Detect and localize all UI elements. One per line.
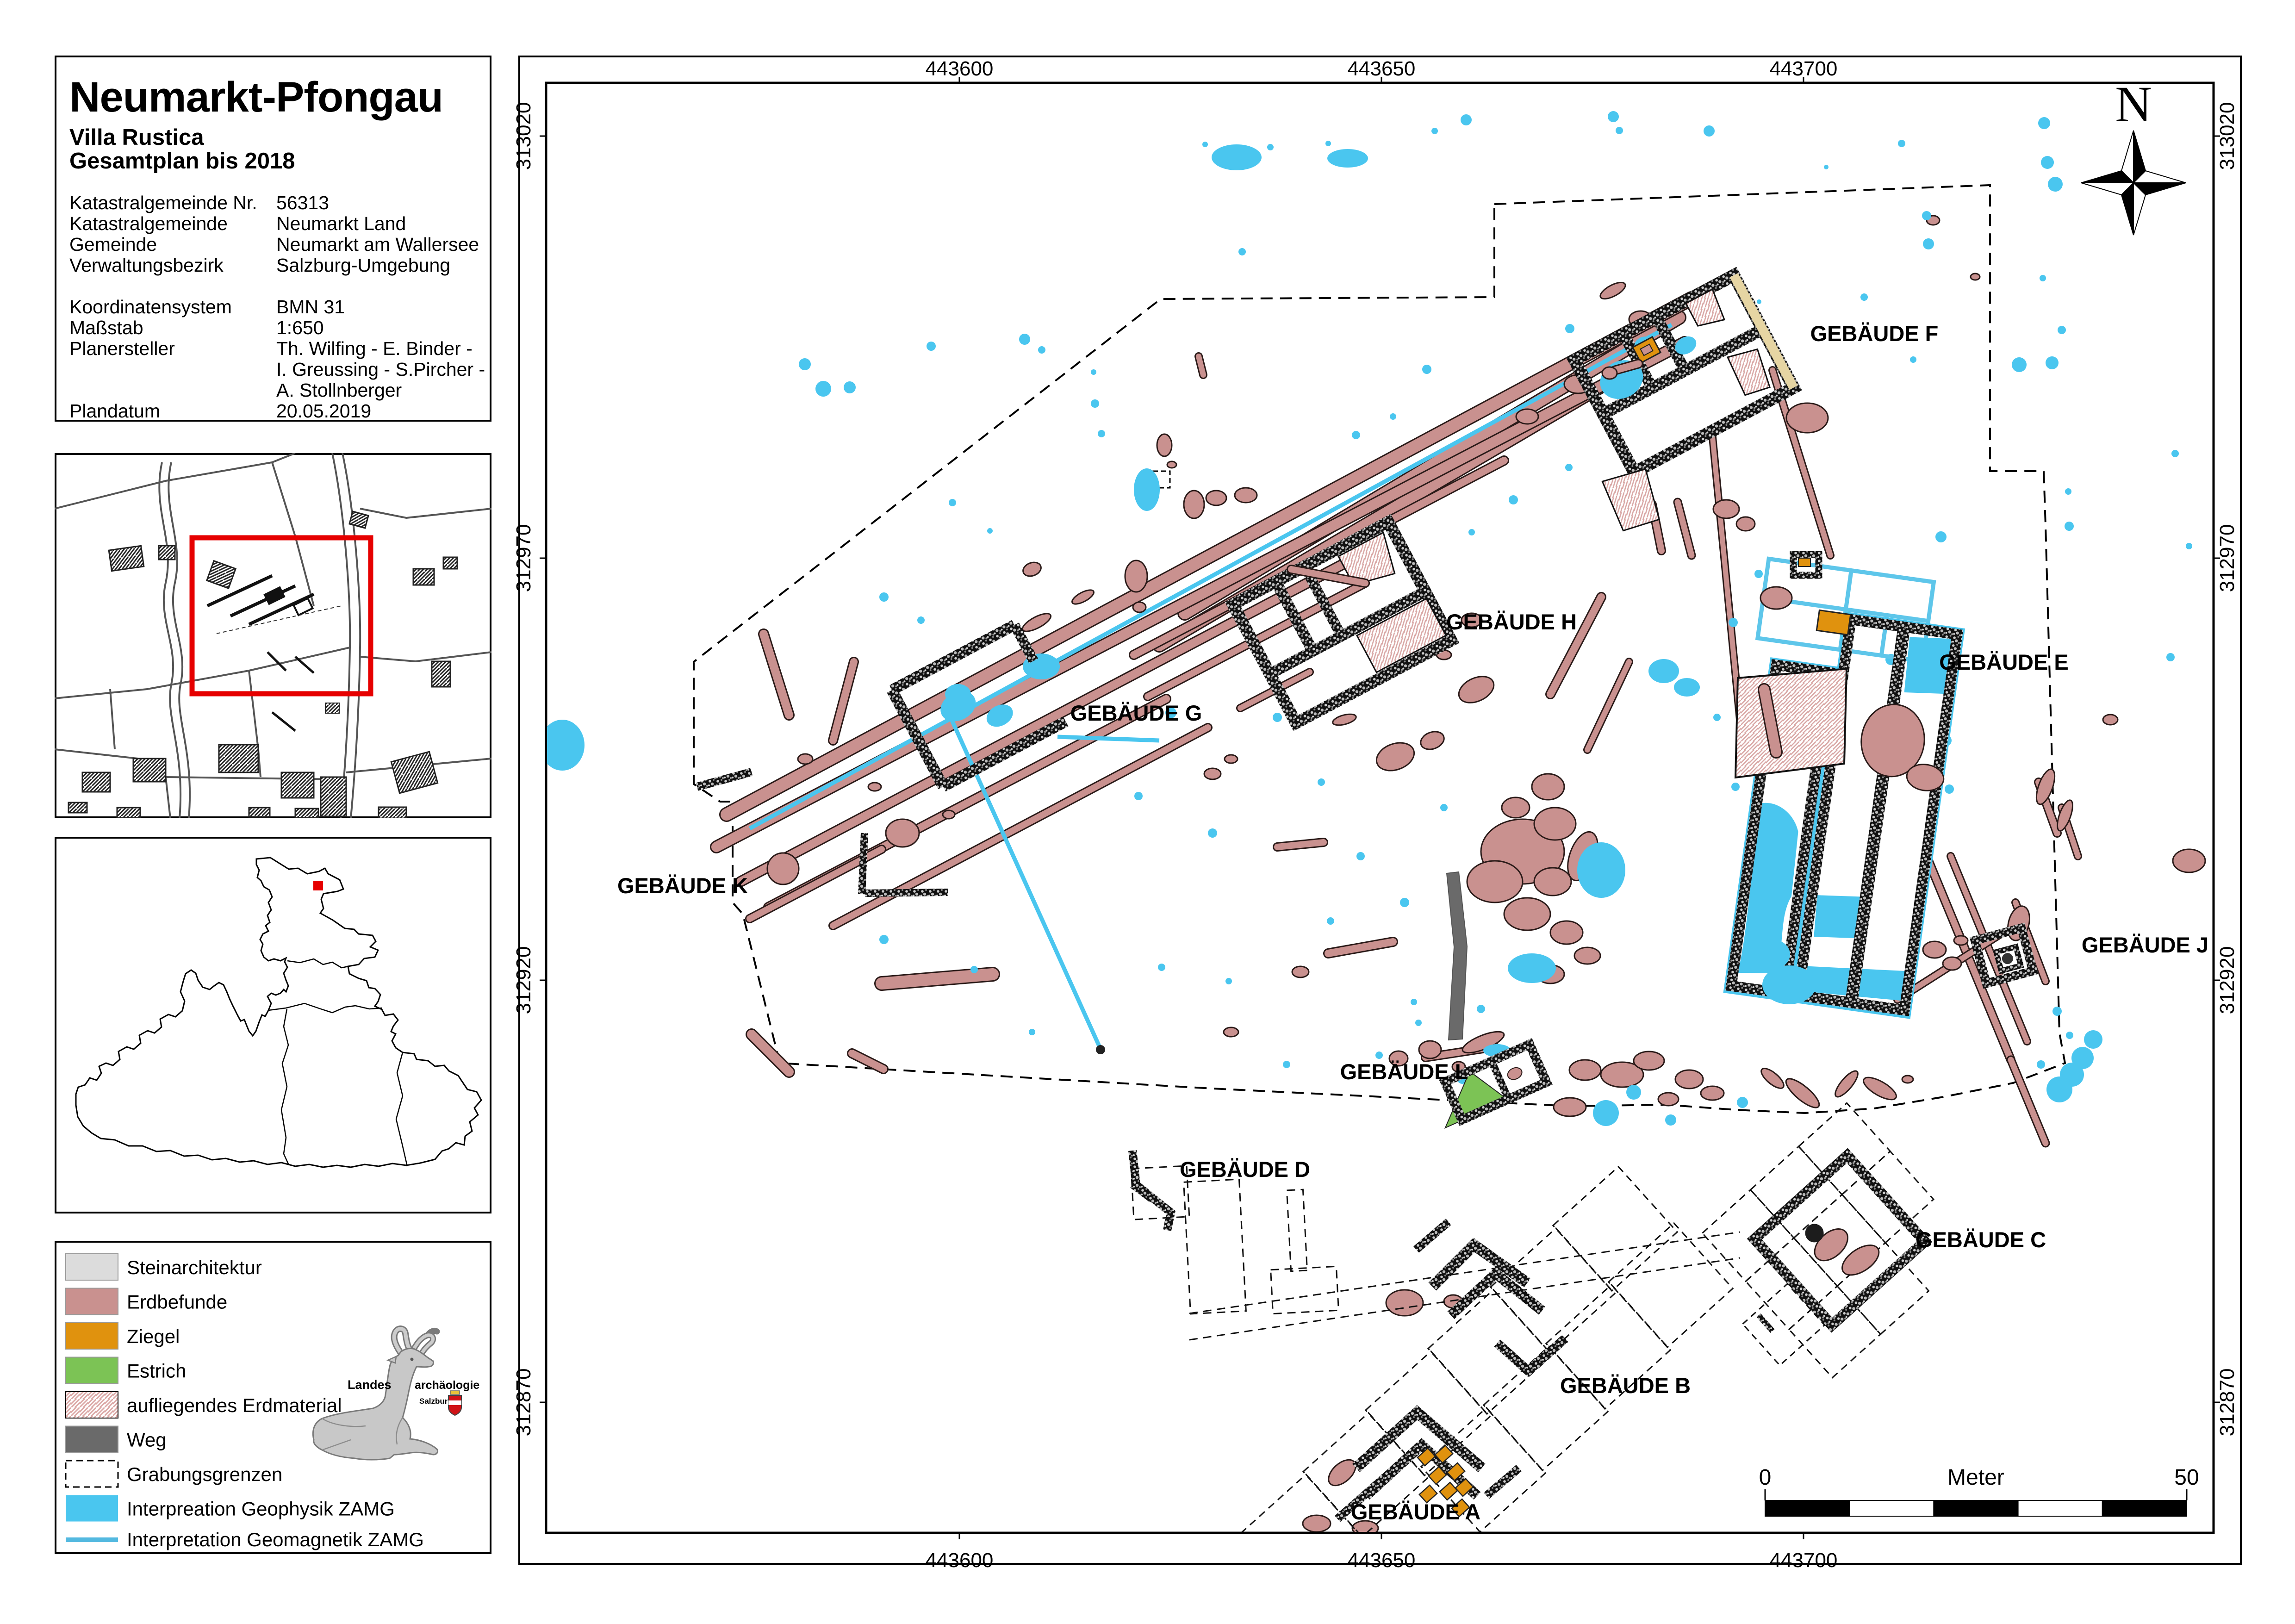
- svg-text:443700: 443700: [1770, 1549, 1838, 1572]
- svg-text:312970: 312970: [512, 524, 535, 592]
- svg-text:GEBÄUDE F: GEBÄUDE F: [1810, 321, 1939, 346]
- svg-text:GEBÄUDE K: GEBÄUDE K: [617, 873, 748, 898]
- svg-text:Meter: Meter: [1947, 1465, 2004, 1490]
- svg-text:443650: 443650: [1348, 1549, 1416, 1572]
- svg-text:GEBÄUDE D: GEBÄUDE D: [1180, 1157, 1310, 1182]
- svg-text:312870: 312870: [2216, 1369, 2239, 1437]
- svg-text:50: 50: [2174, 1465, 2199, 1490]
- svg-text:312920: 312920: [512, 946, 535, 1014]
- svg-text:312970: 312970: [2216, 524, 2239, 592]
- svg-text:443600: 443600: [926, 1549, 994, 1572]
- svg-text:GEBÄUDE L: GEBÄUDE L: [1340, 1059, 1468, 1084]
- svg-text:GEBÄUDE J: GEBÄUDE J: [2082, 933, 2208, 957]
- svg-text:312920: 312920: [2216, 946, 2239, 1014]
- svg-text:443700: 443700: [1770, 57, 1838, 80]
- svg-text:GEBÄUDE G: GEBÄUDE G: [1070, 701, 1202, 725]
- svg-text:GEBÄUDE E: GEBÄUDE E: [1939, 650, 2068, 674]
- svg-text:313020: 313020: [512, 102, 535, 170]
- svg-text:GEBÄUDE C: GEBÄUDE C: [1916, 1227, 2046, 1252]
- svg-text:GEBÄUDE H: GEBÄUDE H: [1446, 610, 1577, 634]
- svg-text:443650: 443650: [1348, 57, 1416, 80]
- svg-text:313020: 313020: [2216, 102, 2239, 170]
- svg-text:443600: 443600: [926, 57, 994, 80]
- svg-text:N: N: [2115, 76, 2152, 132]
- svg-text:GEBÄUDE A: GEBÄUDE A: [1351, 1500, 1480, 1524]
- svg-text:312870: 312870: [512, 1369, 535, 1437]
- svg-text:0: 0: [1759, 1465, 1772, 1490]
- svg-text:GEBÄUDE B: GEBÄUDE B: [1560, 1373, 1691, 1398]
